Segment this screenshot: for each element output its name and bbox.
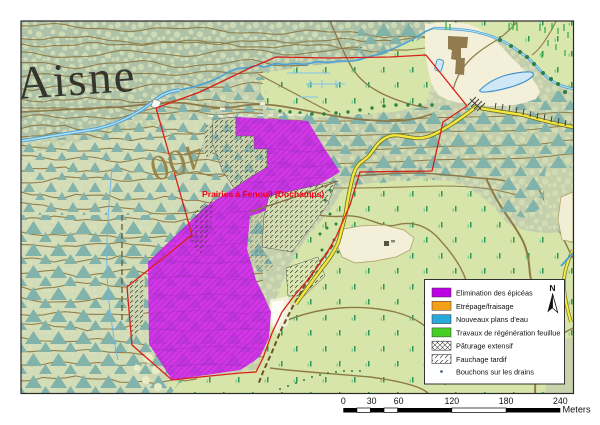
svg-text:N: N — [549, 283, 555, 293]
svg-text:180: 180 — [499, 396, 514, 406]
svg-text:Nouveaux plans d'eau: Nouveaux plans d'eau — [456, 315, 528, 324]
svg-text:Fauchage tardif: Fauchage tardif — [456, 355, 508, 364]
svg-text:Etrépage/fraisage: Etrépage/fraisage — [456, 302, 514, 311]
svg-text:120: 120 — [444, 396, 459, 406]
svg-text:Aisne: Aisne — [15, 50, 138, 110]
svg-text:0: 0 — [341, 396, 346, 406]
svg-text:Pâturage extensif: Pâturage extensif — [456, 342, 514, 351]
svg-text:Elimination des épicéas: Elimination des épicéas — [456, 289, 533, 298]
svg-text:30: 30 — [367, 396, 377, 406]
svg-text:Travaux de régénération feuill: Travaux de régénération feuillue — [456, 328, 560, 337]
svg-text:60: 60 — [394, 396, 404, 406]
svg-text:Meters: Meters — [563, 405, 591, 415]
svg-text:Bouchons sur les drains: Bouchons sur les drains — [456, 368, 534, 377]
svg-text:Prairies à Fenouil (Dochamps): Prairies à Fenouil (Dochamps) — [202, 189, 324, 199]
